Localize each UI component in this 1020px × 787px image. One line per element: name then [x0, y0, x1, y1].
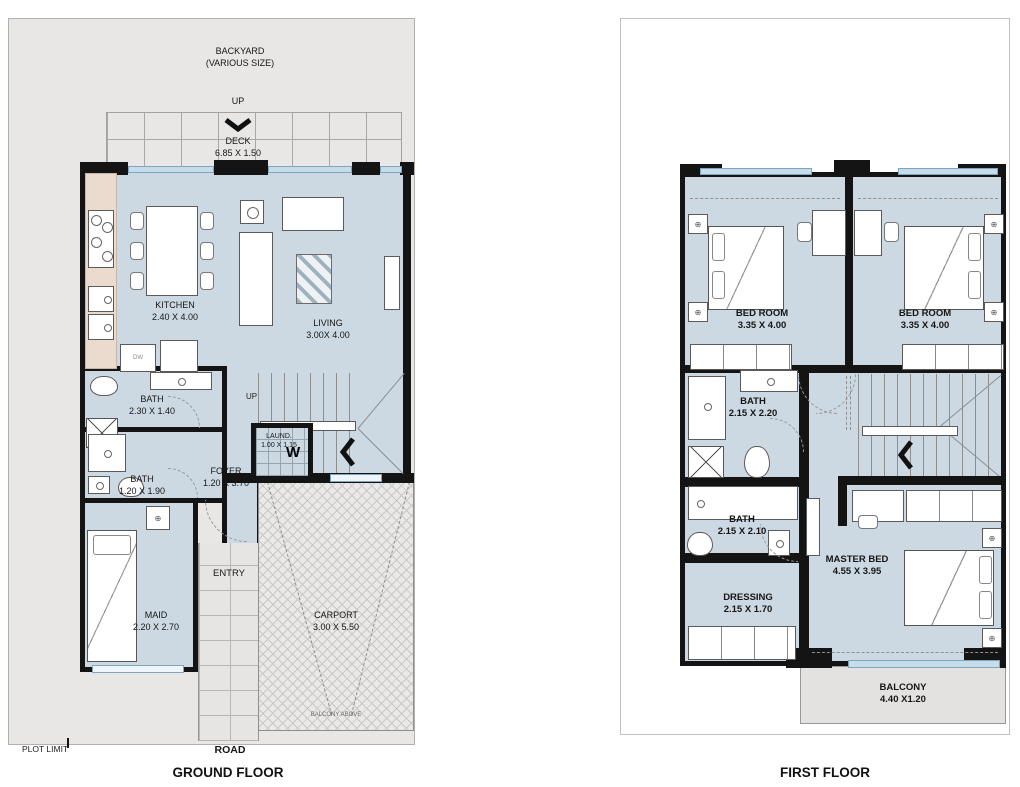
balcony-above-note: BALCONY ABOVE	[311, 712, 362, 718]
kitchen-sink	[88, 314, 114, 340]
bed	[87, 530, 137, 662]
shower-cabin	[688, 376, 726, 440]
vanity-sink	[740, 370, 798, 392]
wall-segment	[352, 162, 380, 175]
dresser	[906, 490, 1002, 522]
desk-chair	[858, 515, 878, 529]
desk-chair	[797, 222, 812, 242]
desk	[812, 210, 846, 256]
window	[898, 168, 998, 175]
dining-chair	[130, 212, 144, 230]
stairs-up-label: UP	[246, 392, 257, 401]
stairs-first	[858, 374, 1000, 476]
maid-label: MAID2.20 X 2.70	[133, 610, 179, 633]
door-leaf-line	[846, 376, 847, 430]
road-label: ROAD	[215, 744, 246, 758]
bath-b-label: BATH1.20 X 1.90	[119, 474, 165, 497]
foyer-label: FOYER1.20 X 3.70	[203, 466, 249, 489]
console-table	[806, 498, 820, 556]
rug	[296, 254, 332, 304]
plot-limit-label: PLOT LIMIT	[22, 744, 68, 754]
washer-icon: W	[286, 444, 300, 461]
window	[128, 166, 214, 173]
stove	[88, 210, 114, 268]
wardrobe	[902, 344, 1004, 370]
nightstand: ⊕	[984, 214, 1004, 234]
curtain-line	[690, 198, 840, 199]
bath-b-first-label: BATH2.15 X 2.10	[718, 514, 767, 539]
bath-a-first-label: BATH2.15 X 2.20	[729, 396, 778, 421]
wardrobe	[688, 626, 796, 660]
window	[700, 168, 812, 175]
bed	[708, 226, 784, 310]
entry-label: ENTRY	[213, 568, 245, 580]
dressing-label: DRESSING2.15 X 1.70	[723, 592, 773, 617]
bed	[904, 550, 994, 626]
bath-a-label: BATH2.30 X 1.40	[129, 394, 175, 417]
dishwasher: DW	[120, 344, 156, 372]
balcony-window	[848, 660, 1000, 668]
sofa	[239, 232, 273, 326]
side-table: ⊕	[146, 506, 170, 530]
stair-direction-arrow-icon	[340, 437, 356, 467]
backyard-label: BACKYARD (VARIOUS SIZE)	[206, 46, 274, 69]
toilet	[744, 446, 770, 478]
wardrobe	[690, 344, 792, 370]
dining-chair	[200, 242, 214, 260]
sofa	[282, 197, 344, 231]
carport-label: CARPORT3.00 X 5.50	[313, 610, 359, 633]
carport-area	[258, 478, 414, 731]
wall-segment	[838, 476, 847, 526]
door-leaf-line	[850, 376, 851, 430]
nightstand: ⊕	[982, 528, 1002, 548]
dining-chair	[200, 272, 214, 290]
dining-chair	[130, 242, 144, 260]
nightstand: ⊕	[688, 302, 708, 322]
dining-table	[146, 206, 198, 296]
nightstand: ⊕	[982, 628, 1002, 648]
wall-segment	[214, 160, 268, 175]
deck-label: DECK 6.85 X 1.50	[215, 136, 261, 159]
vanity-sink	[150, 372, 212, 390]
balcony-label: BALCONY4.40 X1.20	[880, 682, 927, 707]
dining-chair	[130, 272, 144, 290]
bed	[904, 226, 984, 310]
dining-chair	[200, 212, 214, 230]
wall-segment	[838, 476, 1006, 485]
nightstand: ⊕	[984, 302, 1004, 322]
wash-basin	[88, 476, 110, 494]
stair-rail	[862, 426, 958, 436]
window	[380, 166, 402, 173]
curtain-line	[858, 198, 998, 199]
stair-direction-arrow-icon	[898, 440, 914, 470]
kitchen-sink	[88, 286, 114, 312]
wall-segment	[834, 160, 870, 176]
desk	[854, 210, 882, 256]
living-label: LIVING3.00X 4.00	[306, 318, 350, 341]
wall-segment	[403, 168, 411, 474]
console-table	[384, 256, 400, 310]
deck-up-label: UP	[232, 96, 245, 108]
shower-cabin	[88, 434, 126, 472]
ground-floor-title: GROUND FLOOR	[173, 765, 284, 780]
window	[92, 665, 184, 673]
fridge	[160, 340, 198, 372]
master-bed-label: MASTER BED4.55 X 3.95	[826, 554, 889, 579]
deck-down-arrow-icon	[224, 118, 252, 132]
bedroom-left-label: BED ROOM3.35 X 4.00	[736, 308, 788, 333]
nightstand: ⊕	[688, 214, 708, 234]
curtain-line	[812, 652, 998, 653]
shower	[688, 446, 724, 478]
window	[330, 474, 382, 482]
toilet	[90, 376, 118, 396]
kitchen-label: KITCHEN2.40 X 4.00	[152, 300, 198, 323]
floor-plan-sheet: BACKYARD (VARIOUS SIZE) UP DECK 6.85 X 1…	[0, 0, 1020, 787]
first-floor-title: FIRST FLOOR	[780, 765, 870, 780]
window	[268, 166, 352, 173]
toilet	[687, 532, 713, 556]
bedroom-right-label: BED ROOM3.35 X 4.00	[899, 308, 951, 333]
fireplace-unit	[240, 200, 264, 224]
desk-chair	[884, 222, 899, 242]
